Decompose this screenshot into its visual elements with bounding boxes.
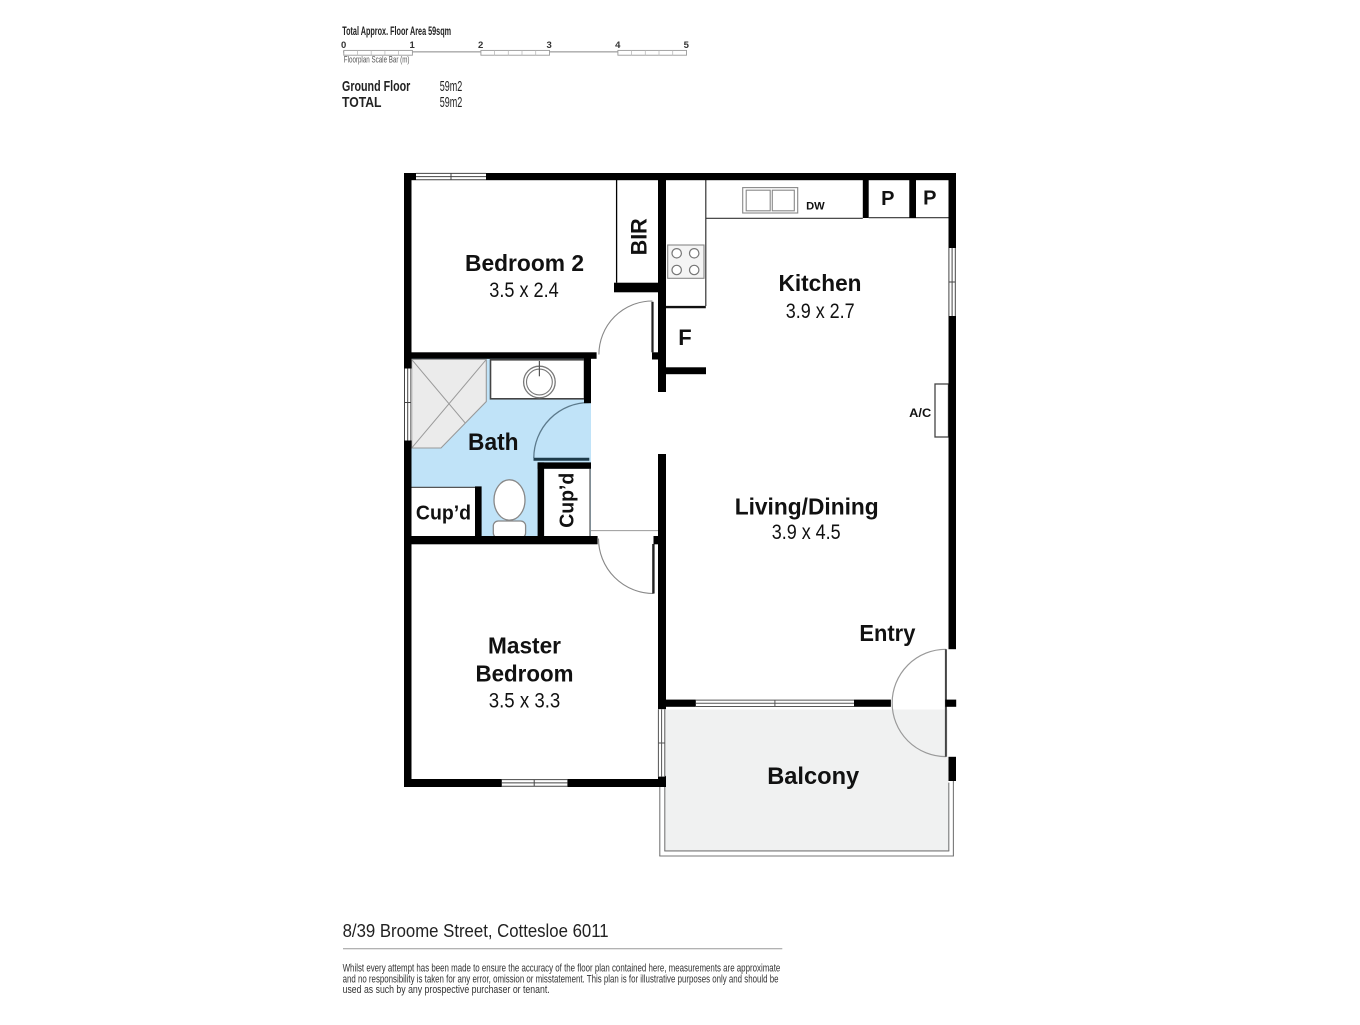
svg-text:0: 0: [341, 40, 346, 51]
svg-text:3.9 x 4.5: 3.9 x 4.5: [772, 521, 841, 544]
svg-text:5: 5: [684, 40, 690, 51]
svg-text:DW: DW: [806, 201, 825, 213]
svg-text:Bath: Bath: [468, 429, 519, 456]
svg-text:Bedroom: Bedroom: [476, 660, 574, 686]
svg-text:Ground Floor: Ground Floor: [342, 78, 410, 95]
svg-text:Cup’d: Cup’d: [556, 473, 578, 528]
svg-text:Floorplan Scale Bar (m): Floorplan Scale Bar (m): [344, 55, 410, 65]
svg-text:Total Approx. Floor Area 59sqm: Total Approx. Floor Area 59sqm: [342, 24, 451, 38]
svg-text:59m2: 59m2: [440, 78, 463, 95]
svg-text:Balcony: Balcony: [767, 763, 860, 790]
svg-text:2: 2: [478, 40, 483, 51]
svg-text:3.5 x 3.3: 3.5 x 3.3: [489, 690, 561, 713]
svg-text:Bedroom 2: Bedroom 2: [465, 250, 584, 276]
svg-text:8/39 Broome Street, Cottesloe: 8/39 Broome Street, Cottesloe 6011: [343, 920, 609, 941]
svg-text:Living/Dining: Living/Dining: [735, 493, 879, 519]
svg-text:3: 3: [547, 40, 552, 51]
svg-text:P: P: [923, 188, 936, 210]
svg-text:1: 1: [409, 40, 415, 51]
svg-text:59m2: 59m2: [440, 94, 463, 111]
svg-text:Entry: Entry: [859, 620, 915, 646]
svg-text:F: F: [678, 325, 691, 350]
svg-text:3.5 x 2.4: 3.5 x 2.4: [489, 279, 559, 302]
svg-text:P: P: [881, 188, 894, 210]
svg-text:Cup’d: Cup’d: [416, 503, 471, 525]
svg-text:3.9 x 2.7: 3.9 x 2.7: [786, 300, 855, 323]
svg-text:BIR: BIR: [627, 218, 652, 255]
svg-text:Master: Master: [488, 633, 561, 659]
svg-text:Kitchen: Kitchen: [779, 270, 862, 296]
svg-text:A/C: A/C: [909, 406, 931, 420]
svg-text:4: 4: [615, 40, 621, 51]
svg-text:TOTAL: TOTAL: [342, 94, 382, 111]
svg-text:used as such by any prospectiv: used as such by any prospective purchase…: [343, 984, 550, 996]
